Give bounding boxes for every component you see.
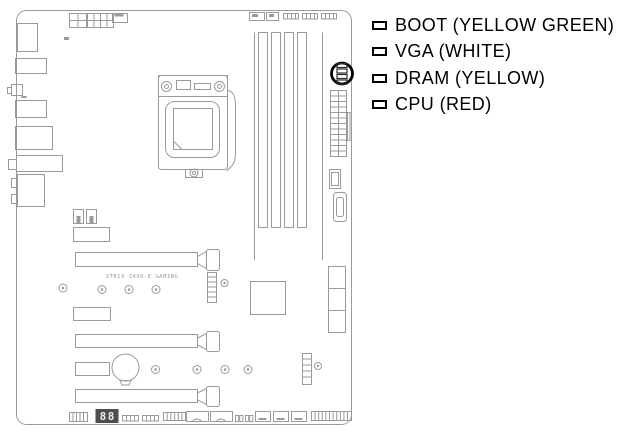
motherboard-qled-diagram: STRIX Z490-E GAMING [0,0,620,434]
chipset [251,282,286,315]
m2-slot-bottom-right [303,354,322,385]
dimm-slots [255,33,323,261]
debug-display-digits: 88 [100,410,116,423]
pcie-slot-3 [76,387,220,407]
dram-led-icon [372,74,387,83]
legend-label-cpu: CPU (RED) [395,94,492,115]
legend-item-cpu: CPU (RED) [372,92,614,119]
standoff-screws [59,284,252,374]
audio-header-component [74,210,110,242]
legend-label-vga: VGA (WHITE) [395,41,511,62]
m2-slot-middle [208,273,229,303]
sata-ports [329,267,346,333]
qled-legend: BOOT (YELLOW GREEN) VGA (WHITE) DRAM (YE… [372,12,614,118]
usb-c-front-panel-header [334,193,347,222]
legend-item-dram: DRAM (YELLOW) [372,65,614,92]
board-label-text: STRIX Z490-E GAMING [106,274,179,280]
board-model-label: STRIX Z490-E GAMING [106,274,179,280]
fan-headers-top [250,13,279,21]
pcie-slot-1 [76,250,220,271]
header-rect-mid [76,363,110,376]
legend-item-boot: BOOT (YELLOW GREEN) [372,12,614,39]
vga-led-icon [372,47,387,56]
legend-label-dram: DRAM (YELLOW) [395,68,545,89]
rgb-headers-top [284,14,337,20]
cmos-battery [112,354,139,385]
board-outline [17,11,352,425]
pcie-slot-2 [76,332,220,352]
legend-item-vga: VGA (WHITE) [372,39,614,66]
atx-24pin-connector [331,91,351,157]
cpu-power-connectors [70,14,128,28]
cpu-socket [159,76,236,178]
m2-heatsink-label-rect [74,308,111,321]
legend-label-boot: BOOT (YELLOW GREEN) [395,15,614,36]
cpu-led-icon [372,100,387,109]
debug-code-display: 88 [96,409,119,423]
boot-led-icon [372,21,387,30]
usb-front-panel-header [330,170,341,189]
